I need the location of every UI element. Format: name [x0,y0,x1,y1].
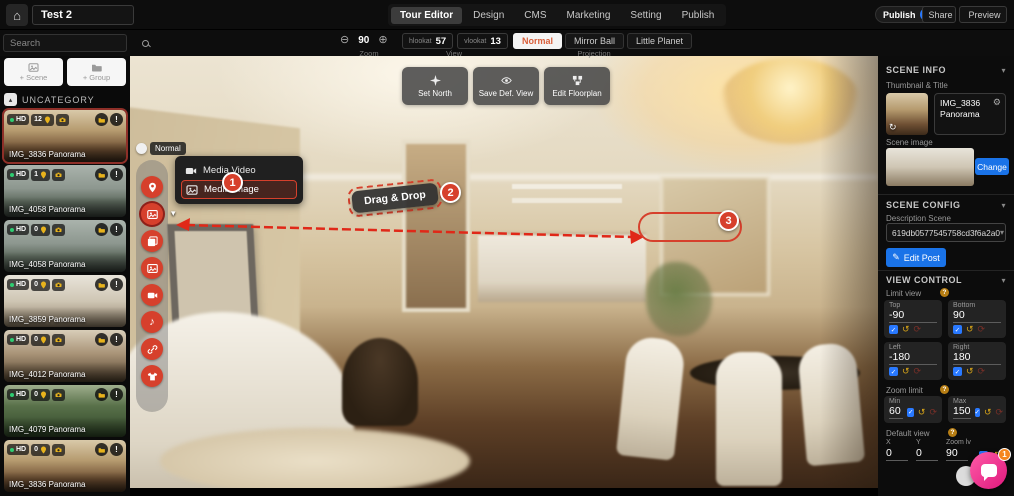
preview-button[interactable]: Preview [959,6,1007,23]
chevron-down-icon[interactable]: ▾ [171,208,176,219]
chair-decoration [716,352,782,486]
scene-card[interactable]: HD 0 ! IMG_4012 Panorama [4,330,126,382]
hd-dot-icon [10,283,14,287]
share-label: Share [928,10,952,20]
zoom-group-label: Zoom [338,49,400,58]
scene-alert-button[interactable]: ! [110,333,123,346]
alert-icon: ! [115,335,118,344]
floorplan-icon [572,75,583,86]
scene-card-badges: HD 0 ! [7,443,123,456]
hd-badge: HD [7,169,29,180]
toggle-knob[interactable] [136,143,147,154]
drag-drop-label: Drag & Drop [351,183,439,214]
edit-post-button[interactable]: ✎ Edit Post [886,248,946,267]
scene-title-value: IMG_3836 Panorama [940,98,996,120]
scene-card[interactable]: HD 0 ! IMG_3859 Panorama [4,275,126,327]
projection-normal-button[interactable]: Normal [513,33,562,49]
undo-icon[interactable]: ↺ [902,325,910,334]
zoom-limit-label: Zoom limit [886,386,923,395]
projection-group-label: Projection [513,49,675,58]
set-north-button[interactable]: Set North [402,67,468,105]
camera-icon [55,446,62,454]
checkbox-checked-icon[interactable]: ✓ [975,408,980,417]
redo-icon[interactable]: ⟳ [996,408,1004,417]
rug-decoration [160,428,470,488]
camera-icon [55,336,62,344]
panorama-viewport[interactable]: Set North Save Def. View Edit Floorplan … [130,56,878,488]
checkbox-checked-icon[interactable]: ✓ [889,367,898,376]
hotspot-toolbar: ♪ [136,160,168,412]
undo-icon[interactable]: ↺ [918,408,926,417]
editor-toolbar-row: ⊖ 90 ⊕ Zoom hlookat 57 vlookat 13 View N… [0,30,1014,56]
alert-icon: ! [115,225,118,234]
camera-badge [52,444,65,456]
project-title-input[interactable] [32,5,134,25]
scene-name: IMG_3836 Panorama [9,150,86,159]
scene-image-label: Scene image [886,138,933,147]
camera-badge [56,114,69,126]
limit-view-label: Limit view [886,289,921,298]
category-label: UNCATEGORY [22,95,95,105]
alert-icon: ! [115,115,118,124]
media-video-tool-button[interactable] [141,284,163,306]
hotspot-count-badge: 0 [31,279,50,291]
undo-icon[interactable]: ↺ [966,367,974,376]
collapse-category-button[interactable]: ▴ [4,93,17,106]
pin-icon [40,171,47,179]
alert-icon: ! [115,445,118,454]
help-icon[interactable]: ? [948,428,957,437]
canvas-action-buttons: Set North Save Def. View Edit Floorplan [402,67,610,105]
scene-folder-button[interactable] [95,113,108,126]
alert-icon: ! [115,280,118,289]
scene-name: IMG_3859 Panorama [9,315,86,324]
doorway-decoration [402,140,470,312]
media-link-tool-button[interactable] [141,338,163,360]
hd-badge: HD [7,389,29,400]
scene-name: IMG_4012 Panorama [9,370,86,379]
scene-card-badges: HD 1 ! [7,168,123,181]
chat-bubble-icon [981,464,997,477]
limit-right-field[interactable]: Right 180 ✓↺⟳ [948,342,1006,380]
scene-name: IMG_4079 Panorama [9,425,86,434]
scene-folder-button[interactable] [95,278,108,291]
search-icon [142,40,149,47]
scene-list-sidebar: + Scene + Group ▴ UNCATEGORY HD 12 ! IMG… [0,56,130,496]
scene-alert-button[interactable]: ! [110,168,123,181]
zoom-out-icon[interactable]: ⊖ [340,35,349,46]
chevron-down-icon: ▾ [1001,201,1006,210]
shelf-decoration [512,184,622,189]
chevron-down-icon: ▾ [1001,276,1006,285]
publish-label: Publish [883,10,916,20]
hlookat-field[interactable]: hlookat 57 [402,33,453,49]
zoom-control-group: ⊖ 90 ⊕ [340,33,388,48]
chat-unread-badge: 1 [998,448,1011,461]
plant-decoration [646,262,712,336]
limit-top-field[interactable]: Top -90 ✓↺⟳ [884,300,942,338]
scene-config-header[interactable]: SCENE CONFIG▾ [886,200,1006,210]
description-scene-select[interactable]: 619db0577545758cd3f6a2a0 ▾ [886,223,1006,242]
hotspot-count-badge: 0 [31,444,50,456]
tab-setting[interactable]: Setting [621,7,670,24]
default-view-label: Default view [886,429,930,438]
refresh-icon[interactable]: ↻ [889,122,897,133]
zoom-min-field[interactable]: Min 60✓↺⟳ [884,396,942,423]
checkbox-checked-icon[interactable]: ✓ [953,325,962,334]
save-default-view-label: Save Def. View [479,89,534,98]
projection-group: Normal Mirror Ball Little Planet [513,33,692,49]
media-gallery-tool-button[interactable] [141,230,163,252]
alert-icon: ! [115,390,118,399]
set-north-label: Set North [418,89,452,98]
home-button[interactable]: ⌂ [6,4,28,26]
folder-icon [98,447,105,453]
edit-floorplan-button[interactable]: Edit Floorplan [544,67,610,105]
hotspot-count-badge: 12 [31,114,54,126]
chevron-up-icon: ▴ [9,96,13,104]
zoom-in-icon[interactable]: ⊕ [378,35,387,46]
camera-badge [52,279,65,291]
tour-editor-app: ⌂ Tour Editor Design CMS Marketing Setti… [0,0,1014,496]
pin-icon [40,336,47,344]
image-icon [28,63,39,72]
zoom-value: 90 [358,35,369,46]
redo-icon[interactable]: ⟳ [914,367,922,376]
inspector-panel: Scene Hotspot12 SCENE INFO▾ Thumbnail & … [878,30,1014,496]
scene-alert-button[interactable]: ! [110,113,123,126]
thumbnail-title-label: Thumbnail & Title [886,81,948,90]
add-scene-label: + Scene [20,73,48,82]
divider [878,194,1014,195]
mode-label: Normal [150,142,186,155]
change-image-button[interactable]: Change [975,158,1009,175]
camera-icon [55,226,62,234]
scene-folder-button[interactable] [95,168,108,181]
help-icon[interactable]: ? [940,288,949,297]
hd-dot-icon [10,393,14,397]
scene-card-badges: HD 12 ! [7,113,123,126]
default-zoom-field[interactable]: Zoom lv 90 [946,439,971,461]
hotspot-mode-toggle[interactable]: Normal [136,142,186,155]
cabinet-decoration [478,232,646,302]
scene-name: IMG_4058 Panorama [9,205,86,214]
gear-icon[interactable]: ⚙ [993,97,1001,108]
image-icon [186,185,198,195]
hd-badge: HD [7,224,29,235]
view-group-label: View [402,49,506,58]
shirt-icon [147,371,158,382]
alert-icon: ! [115,170,118,179]
folder-icon [98,392,105,398]
scene-search[interactable] [3,34,127,52]
home-icon: ⌂ [13,8,21,23]
save-default-view-button[interactable]: Save Def. View [473,67,539,105]
share-button[interactable]: Share [922,6,956,23]
hd-dot-icon [10,338,14,342]
camera-badge [52,169,65,181]
hotspot-count-badge: 0 [31,224,50,236]
limit-left-field[interactable]: Left -180 ✓↺⟳ [884,342,942,380]
redo-icon[interactable]: ⟳ [929,408,937,417]
folder-icon [98,337,105,343]
view-control-header[interactable]: VIEW CONTROL▾ [886,275,1006,285]
north-star-icon [430,75,441,86]
scene-alert-button[interactable]: ! [110,278,123,291]
hotspot-count-badge: 0 [31,389,50,401]
folder-icon [98,282,105,288]
pin-icon [40,281,47,289]
redo-icon[interactable]: ⟳ [978,367,986,376]
vlookat-value: 13 [490,36,501,47]
hd-badge: HD [7,444,29,455]
pencil-icon: ✎ [892,252,900,263]
category-header: ▴ UNCATEGORY [4,93,95,106]
checkbox-checked-icon[interactable]: ✓ [907,408,913,417]
main-nav-tabs: Tour Editor Design CMS Marketing Setting… [388,4,726,26]
scene-name: IMG_4058 Panorama [9,260,86,269]
media-shop-tool-button[interactable] [141,365,163,387]
hotspot-pin-button[interactable] [141,176,163,198]
hd-dot-icon [10,448,14,452]
chevron-down-icon: ▾ [1001,66,1006,75]
pin-icon [147,182,158,193]
edit-floorplan-label: Edit Floorplan [552,89,601,98]
folder-icon [91,63,102,72]
description-scene-value: 619db0577545758cd3f6a2a0 [892,228,1000,238]
hd-dot-icon [10,118,14,122]
add-group-button[interactable]: + Group [67,58,126,86]
scene-name: IMG_3836 Panorama [9,480,86,489]
hd-badge: HD [7,279,29,290]
projection-mirror-ball-button[interactable]: Mirror Ball [565,33,624,49]
step-1-marker: 1 [222,172,243,193]
pin-icon [40,226,47,234]
hlookat-label: hlookat [409,38,432,45]
scene-alert-button[interactable]: ! [110,443,123,456]
gallery-icon [147,236,158,247]
scene-card[interactable]: HD 0 ! IMG_3836 Panorama [4,440,126,492]
limit-bottom-field[interactable]: Bottom 90 ✓↺⟳ [948,300,1006,338]
scene-thumbnail[interactable]: ↻ [886,93,928,135]
folder-icon [98,227,105,233]
camera-icon [55,281,62,289]
link-icon [147,344,158,355]
preview-label: Preview [969,10,1001,20]
checkbox-checked-icon[interactable]: ✓ [889,325,898,334]
edit-post-label: Edit Post [904,253,940,263]
scene-folder-button[interactable] [95,388,108,401]
tab-tour-editor[interactable]: Tour Editor [391,7,462,24]
vlookat-label: vlookat [464,38,486,45]
folder-icon [98,117,105,123]
scene-card-badges: HD 0 ! [7,333,123,346]
camera-badge [52,389,65,401]
scene-card[interactable]: HD 0 ! IMG_4058 Panorama [4,220,126,272]
redo-icon[interactable]: ⟳ [978,325,986,334]
chair-decoration [616,335,686,460]
hotspot-count-badge: 0 [31,334,50,346]
hotspot-count-badge: 1 [31,169,50,181]
hd-dot-icon [10,173,14,177]
step-3-marker: 3 [718,210,739,231]
scene-alert-button[interactable]: ! [110,388,123,401]
media-image-tool-button[interactable] [141,203,163,225]
hd-badge: HD [7,114,29,125]
camera-badge [52,224,65,236]
search-input[interactable] [10,38,142,49]
default-y-field[interactable]: Y 0 [916,439,938,461]
camera-icon [55,391,62,399]
image-icon [147,209,158,220]
vlookat-field[interactable]: vlookat 13 [457,33,508,49]
hlookat-value: 57 [436,36,447,47]
image-icon [147,263,158,274]
side-table-decoration [342,338,418,426]
scene-folder-button[interactable] [95,333,108,346]
zoom-max-field[interactable]: Max 150✓↺⟳ [948,396,1006,423]
eye-icon [501,75,512,86]
scene-card[interactable]: HD 0 ! IMG_4079 Panorama [4,385,126,437]
undo-icon[interactable]: ↺ [902,367,910,376]
description-scene-label: Description Scene [886,214,951,223]
hd-dot-icon [10,228,14,232]
pin-icon [40,391,47,399]
media-photo-tool-button[interactable] [141,257,163,279]
undo-icon[interactable]: ↺ [984,408,992,417]
scene-card-badges: HD 0 ! [7,388,123,401]
projection-little-planet-button[interactable]: Little Planet [627,33,692,49]
redo-icon[interactable]: ⟳ [914,325,922,334]
music-icon: ♪ [149,317,155,328]
scene-info-header[interactable]: SCENE INFO▾ [886,65,1006,75]
scene-folder-button[interactable] [95,223,108,236]
undo-icon[interactable]: ↺ [966,325,974,334]
tab-publish[interactable]: Publish [673,7,724,24]
scene-alert-button[interactable]: ! [110,223,123,236]
tab-design[interactable]: Design [464,7,513,24]
help-icon[interactable]: ? [940,385,949,394]
tab-cms[interactable]: CMS [515,7,555,24]
scene-folder-button[interactable] [95,443,108,456]
vignette-decoration [820,56,878,488]
folder-icon [98,172,105,178]
scene-card[interactable]: HD 1 ! IMG_4058 Panorama [4,165,126,217]
view-control-group: hlookat 57 vlookat 13 [402,33,508,49]
camera-icon [55,171,62,179]
camera-icon [59,116,66,124]
scene-image-preview [886,148,974,186]
hd-badge: HD [7,334,29,345]
pin-icon [40,446,47,454]
step-2-marker: 2 [440,182,461,203]
divider [878,270,1014,271]
camera-badge [52,334,65,346]
checkbox-checked-icon[interactable]: ✓ [953,367,962,376]
pin-icon [44,116,51,124]
scene-card-badges: HD 0 ! [7,223,123,236]
media-audio-tool-button[interactable]: ♪ [141,311,163,333]
scene-card-badges: HD 0 ! [7,278,123,291]
add-scene-button[interactable]: + Scene [4,58,63,86]
video-camera-icon [185,166,197,176]
scene-title-field[interactable]: IMG_3836 Panorama ⚙ [934,93,1006,135]
add-group-label: + Group [83,73,110,82]
tab-marketing[interactable]: Marketing [558,7,620,24]
chevron-down-icon: ▾ [1000,228,1004,237]
scene-card[interactable]: HD 12 ! IMG_3836 Panorama [4,110,126,162]
default-x-field[interactable]: X 0 [886,439,908,461]
video-camera-icon [147,290,158,301]
top-bar: ⌂ Tour Editor Design CMS Marketing Setti… [0,0,1014,30]
